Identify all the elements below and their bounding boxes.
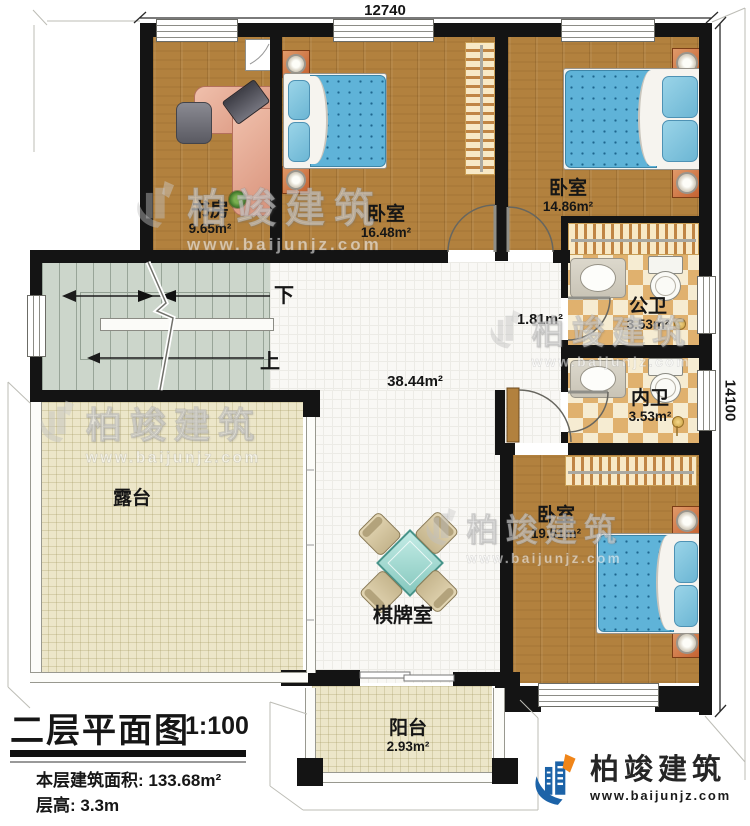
room-label-bedroom-right: 卧室 14.86m² [543, 179, 593, 214]
wall-segment [30, 255, 42, 297]
pillow [674, 585, 698, 627]
wardrobe [568, 223, 699, 255]
balcony-parapet [493, 688, 505, 758]
wall-segment [561, 345, 712, 358]
plan-scale: 1:100 [185, 712, 249, 741]
floor-drain [672, 416, 684, 428]
window [697, 370, 716, 431]
room-area: 16.48m² [361, 226, 411, 241]
room-area: 3.53m² [627, 318, 670, 333]
toilet-bowl-inner [655, 276, 676, 296]
floor-drain [674, 318, 686, 330]
floor-height-line: 层高: 3.3m [36, 791, 119, 816]
nightstand [672, 168, 702, 198]
floor-plan: 书房 9.65m² 卧室 16.48m² 卧室 14.86m² 卧室 19.51… [0, 0, 750, 826]
room-name: 卧室 [361, 205, 411, 226]
title-rule [10, 750, 246, 757]
lamp-icon [676, 510, 698, 532]
lamp-icon [286, 54, 306, 74]
balcony-parapet [323, 772, 492, 783]
brand-logo-icon [532, 751, 582, 807]
wall-segment [495, 390, 505, 443]
pillow [288, 122, 310, 162]
window [27, 295, 46, 357]
bed-sheet-fold [656, 535, 676, 630]
bed-sheet-fold [638, 70, 660, 166]
room-area: 19.51m² [531, 527, 581, 542]
terrace-floor [40, 402, 303, 672]
room-name: 卧室 [543, 179, 593, 200]
wall-segment [30, 250, 448, 263]
room-label-bedroom-bottom: 卧室 19.51m² [531, 506, 581, 541]
window [156, 19, 238, 42]
wall-segment [270, 23, 282, 261]
room-label-game-room: 棋牌室 [373, 599, 433, 628]
room-label-balcony: 阳台 2.93m² [387, 719, 430, 754]
room-name: 卧室 [531, 506, 581, 527]
balcony-pillar [297, 758, 323, 786]
lamp-icon [286, 170, 306, 190]
wardrobe-rail [571, 239, 696, 242]
office-chair [176, 102, 212, 144]
wall-segment [30, 353, 42, 390]
wall-segment [30, 390, 320, 402]
wall-segment [500, 443, 513, 685]
stair-up-label: 上 [260, 345, 280, 374]
plan-title: 二层平面图 [10, 703, 190, 752]
stair-handrail [100, 318, 274, 331]
terrace-parapet [30, 672, 308, 683]
lamp-icon [676, 632, 698, 654]
window [538, 683, 659, 707]
wardrobe [465, 42, 495, 175]
room-label-study: 书房 9.65m² [189, 201, 232, 236]
corridor-nook-floor [505, 390, 561, 443]
sink-basin [580, 264, 616, 292]
room-label-terrace: 露台 [113, 483, 151, 510]
wall-segment [699, 427, 712, 715]
room-area: 3.53m² [629, 410, 672, 425]
terrace-parapet [30, 402, 42, 680]
nightstand [282, 166, 310, 194]
wardrobe-rail [480, 45, 483, 172]
balcony-parapet [305, 688, 316, 758]
sink [570, 360, 626, 398]
potted-plant [229, 191, 246, 208]
wall-segment [561, 432, 568, 443]
room-area: 14.86m² [543, 200, 593, 215]
floor-area-line: 本层建筑面积: 133.68m² [36, 766, 221, 791]
dimension-top: 12740 [364, 2, 406, 19]
balcony-pillar [492, 758, 518, 784]
lamp-icon [676, 172, 698, 194]
room-name: 公卫 [627, 297, 670, 318]
hall-area-label: 38.44m² [387, 373, 443, 390]
dimension-right: 14100 [722, 361, 739, 441]
pillow [662, 120, 698, 162]
sink-basin [580, 366, 616, 392]
brand-text: 柏竣建筑 www.baijunjz.com [590, 756, 731, 803]
room-label-bedroom-top: 卧室 16.48m² [361, 205, 411, 240]
brand-url: www.baijunjz.com [590, 788, 731, 803]
nightstand [672, 506, 702, 536]
corridor-area-label: 1.81m² [517, 312, 563, 328]
hall-terrace-glazing [306, 417, 316, 673]
wardrobe-rail [568, 471, 694, 474]
wall-segment [655, 686, 712, 712]
wall-segment [303, 390, 320, 417]
wall-segment [699, 23, 712, 278]
room-label-public-bath: 公卫 3.53m² [627, 297, 670, 332]
brand-name: 柏竣建筑 [590, 756, 731, 785]
room-area: 2.93m² [387, 740, 430, 755]
pillow [288, 80, 310, 120]
stair-down-label: 下 [274, 279, 294, 308]
room-name: 内卫 [629, 389, 672, 410]
sink [570, 258, 626, 298]
window [561, 19, 655, 42]
pillow [674, 541, 698, 583]
room-area: 9.65m² [189, 222, 232, 237]
room-name: 书房 [189, 201, 232, 222]
brand-logo: 柏竣建筑 www.baijunjz.com [532, 751, 731, 807]
bedroom-right-floor-tongue [508, 216, 561, 250]
wardrobe [565, 456, 697, 486]
wall-segment [453, 672, 520, 686]
wall-segment [561, 222, 568, 298]
wall-segment [140, 23, 153, 261]
window [333, 19, 434, 42]
room-label-private-bath: 内卫 3.53m² [629, 389, 672, 424]
room-name: 阳台 [387, 719, 430, 740]
title-rule-thin [10, 761, 246, 763]
window [697, 276, 716, 334]
wall-segment [568, 443, 712, 455]
wall-segment [495, 23, 508, 261]
wall-segment [561, 216, 712, 223]
pillow [662, 76, 698, 118]
